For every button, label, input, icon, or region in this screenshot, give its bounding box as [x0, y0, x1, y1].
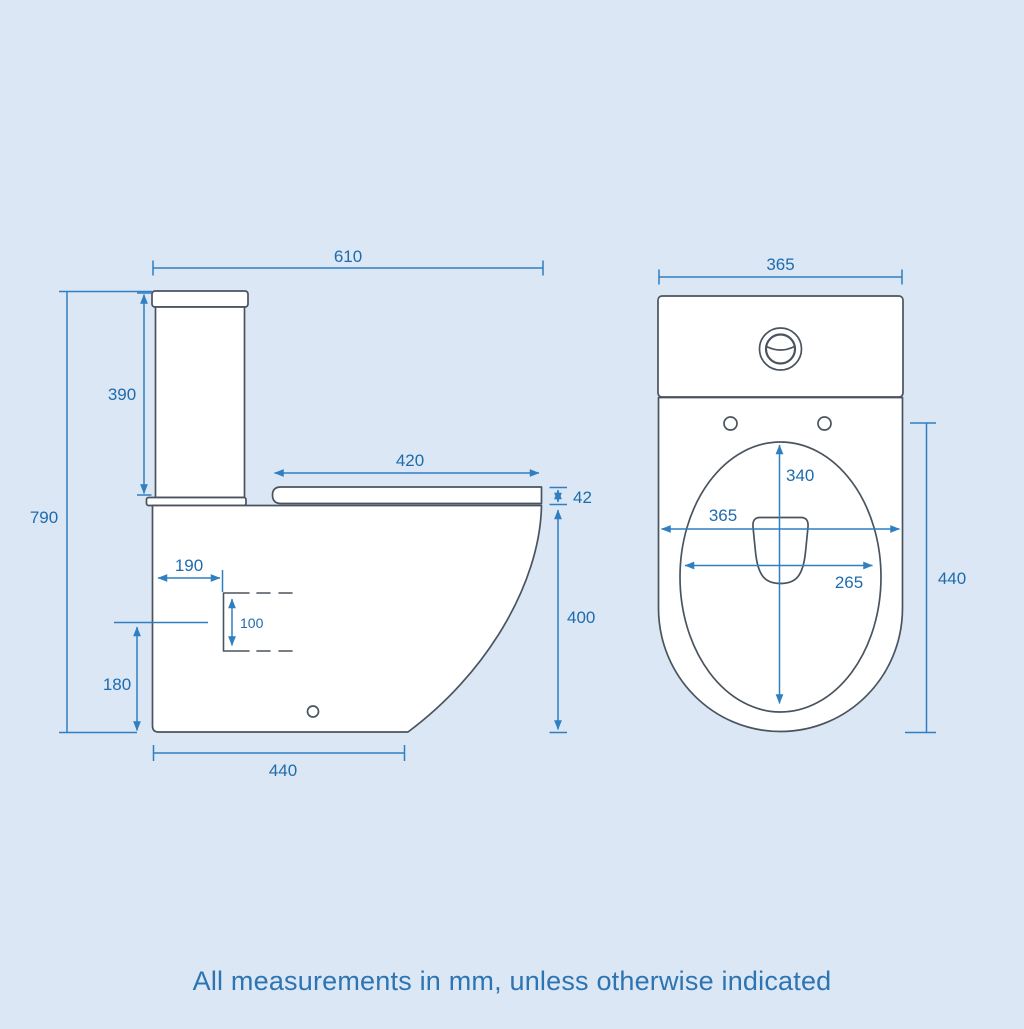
dim-cistern-height — [137, 293, 152, 495]
toilet-seat-side — [273, 487, 542, 504]
dim-base-depth — [154, 745, 405, 761]
dim-label-rim-height: 400 — [567, 608, 595, 627]
dim-label-bowl-width: 265 — [835, 573, 863, 592]
fixing-hole — [308, 706, 319, 717]
pan-body — [153, 506, 542, 733]
dim-label-outlet-height: 180 — [103, 675, 131, 694]
dim-label-overall-width: 365 — [766, 255, 794, 274]
side-view: 610 790 390 420 42 400 190 100 180 440 — [30, 247, 596, 780]
cistern-base — [147, 498, 247, 506]
measurement-note: All measurements in mm, unless otherwise… — [0, 966, 1024, 997]
toilet-dimension-diagram: 610 790 390 420 42 400 190 100 180 440 — [0, 0, 1024, 1024]
dim-label-cistern-height: 390 — [108, 385, 136, 404]
dim-label-seat-thickness: 42 — [573, 488, 592, 507]
cistern-body — [156, 307, 245, 498]
dim-rim-height — [550, 510, 568, 733]
hinge-hole-left — [724, 417, 737, 430]
dim-label-rim-width: 365 — [709, 506, 737, 525]
dim-label-pan-depth: 440 — [938, 569, 966, 588]
cistern-lid — [152, 291, 248, 307]
dim-label-outlet-setback: 190 — [175, 556, 203, 575]
dim-pan-depth — [905, 423, 936, 733]
dim-label-outlet-size: 100 — [240, 615, 264, 631]
flush-outlet-hole — [753, 518, 808, 584]
dim-label-total-height: 790 — [30, 508, 58, 527]
dim-label-base-depth: 440 — [269, 761, 297, 780]
technical-drawing: 610 790 390 420 42 400 190 100 180 440 — [0, 0, 1024, 1024]
dim-label-bowl-length: 340 — [786, 466, 814, 485]
dim-label-total-width: 610 — [334, 247, 362, 266]
dim-label-seat-depth: 420 — [396, 451, 424, 470]
dim-seat-thickness — [550, 488, 568, 505]
plan-view: 365 340 365 265 440 — [658, 255, 966, 733]
dim-total-height — [59, 292, 152, 733]
hinge-hole-right — [818, 417, 831, 430]
